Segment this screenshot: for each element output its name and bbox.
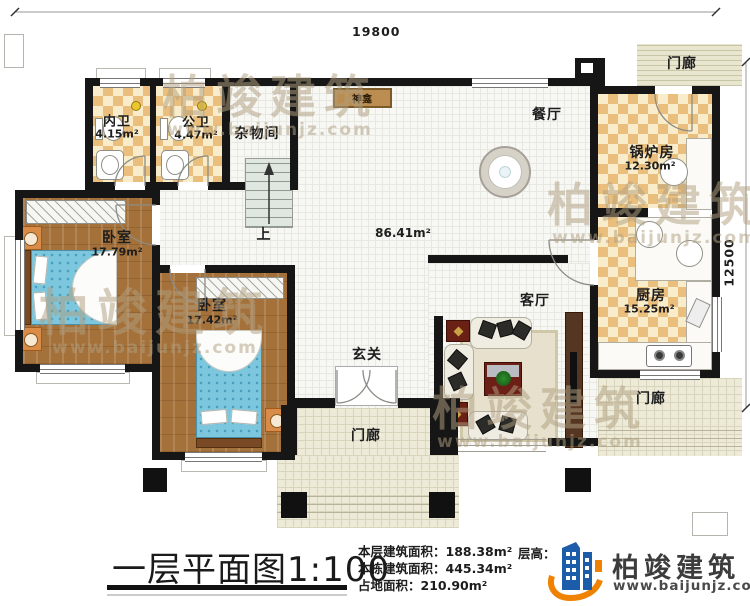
porch-label-right: 门廊 <box>636 388 666 408</box>
logo-accent <box>595 560 602 572</box>
window <box>640 370 700 380</box>
dimension-tick <box>11 8 19 16</box>
window <box>712 297 722 352</box>
stove-burner <box>674 350 685 361</box>
dimension-tick <box>742 58 750 66</box>
sink-basin <box>166 155 184 175</box>
living-steps <box>458 436 546 452</box>
column-footing <box>4 34 24 68</box>
wall <box>85 78 93 190</box>
stat-value: 210.90m² <box>421 578 488 593</box>
room-label-zawujian: 杂物间 <box>235 123 280 143</box>
door-opening <box>655 86 692 94</box>
porch-step-line <box>598 430 742 431</box>
room-label-xuanguan: 玄关 <box>352 344 382 364</box>
window <box>185 452 262 462</box>
area-label-gongwei: 4.47m² <box>174 129 217 142</box>
door-opening <box>115 182 145 190</box>
window <box>15 240 25 330</box>
title-block: 一层平面图1:100 本层建筑面积：188.38m² 本栋建筑面积：445.34… <box>0 536 750 606</box>
title-underline-light <box>107 594 347 596</box>
stat-label: 本层建筑面积： <box>358 544 446 559</box>
column <box>143 468 167 492</box>
bed-headboard <box>196 438 262 448</box>
brand-logo-icon <box>546 538 610 602</box>
stat-floor-area: 本层建筑面积：188.38m² <box>358 543 512 560</box>
stove-burner <box>654 350 665 361</box>
wall <box>150 86 156 182</box>
kitchen-sink <box>676 240 703 267</box>
dimension-height: 12500 <box>722 233 737 293</box>
porch-label-bottom: 门廊 <box>351 425 381 445</box>
porch-label-top: 门廊 <box>667 53 697 73</box>
stat-footprint: 占地面积：210.90m² <box>358 577 512 594</box>
dimension-tick <box>712 8 720 16</box>
dimension-width: 19800 <box>352 24 401 39</box>
dimension-tick <box>742 404 750 412</box>
flue-cavity <box>581 63 593 73</box>
wall <box>222 86 230 182</box>
wall <box>430 405 458 455</box>
area-label-bedroom1: 17.79m² <box>91 246 142 259</box>
wall <box>85 182 245 190</box>
door-opening <box>152 205 160 245</box>
window <box>100 78 140 88</box>
room-label-keting: 客厅 <box>520 290 550 310</box>
lazy-susan <box>499 166 511 178</box>
light-fixture <box>197 101 207 111</box>
wall <box>590 86 598 378</box>
area-label-bedroom2: 17.42m² <box>186 314 237 327</box>
staircase <box>245 158 293 228</box>
floor-plan-sheet: 内卫 4.15m² 公卫 4.47m² 杂物间 卧室 17.79m² 卧室 17… <box>0 0 750 606</box>
stat-building-area: 本栋建筑面积：445.34m² <box>358 560 512 577</box>
room-label-bedroom1: 卧室 <box>102 227 132 247</box>
logo-building <box>562 542 580 590</box>
kitchen-sink <box>636 221 663 248</box>
wall <box>598 208 648 217</box>
side-table <box>446 320 470 342</box>
area-label-chufang: 15.25m² <box>623 303 674 316</box>
entry-door-frame <box>335 366 398 406</box>
brand-site: www.baijunjz.com <box>613 578 750 594</box>
open-area-label: 86.41m² <box>375 226 431 240</box>
stove <box>646 345 692 367</box>
column <box>565 468 591 492</box>
sheet-title: 一层平面图1:100 <box>112 542 390 591</box>
stairs-up-label: 上 <box>257 224 272 244</box>
window <box>163 78 205 88</box>
area-statistics: 本层建筑面积：188.38m² 本栋建筑面积：445.34m² 占地面积：210… <box>358 543 512 594</box>
pillow <box>200 409 227 425</box>
room-label-bedroom2: 卧室 <box>197 295 227 315</box>
sink-basin <box>101 155 119 175</box>
column <box>281 492 307 518</box>
door-opening <box>590 240 598 285</box>
stat-value: 188.38m² <box>446 544 513 559</box>
stat-label: 本栋建筑面积： <box>358 561 446 576</box>
wardrobe <box>26 200 126 224</box>
stat-label: 占地面积： <box>358 578 421 593</box>
pillow <box>33 291 48 320</box>
area-label-neiwei: 4.15m² <box>95 128 138 141</box>
column-footing <box>692 512 728 536</box>
porch-step-line <box>598 446 742 447</box>
logo-building <box>583 552 592 590</box>
porch-step-line <box>598 438 742 439</box>
porch-right-floor <box>598 378 742 456</box>
door-opening <box>170 265 205 273</box>
column <box>429 492 455 518</box>
shrine-label: 神龛 <box>352 91 372 106</box>
tv <box>570 352 577 404</box>
wall <box>281 405 297 455</box>
area-label-guolufang: 12.30m² <box>624 160 675 173</box>
window <box>472 78 548 88</box>
wall <box>290 86 298 190</box>
wall <box>152 372 160 460</box>
pillow <box>230 409 257 425</box>
boiler-counter <box>686 138 712 210</box>
toilet-tank <box>160 118 168 140</box>
plant <box>496 371 511 386</box>
light-fixture <box>131 101 141 111</box>
stat-value: 445.34m² <box>446 561 513 576</box>
door-opening <box>178 182 208 190</box>
window <box>40 364 125 374</box>
title-underline <box>107 585 347 590</box>
wall <box>428 255 568 263</box>
room-label-canting: 餐厅 <box>532 104 562 124</box>
wall <box>15 190 160 198</box>
wall <box>548 438 598 446</box>
